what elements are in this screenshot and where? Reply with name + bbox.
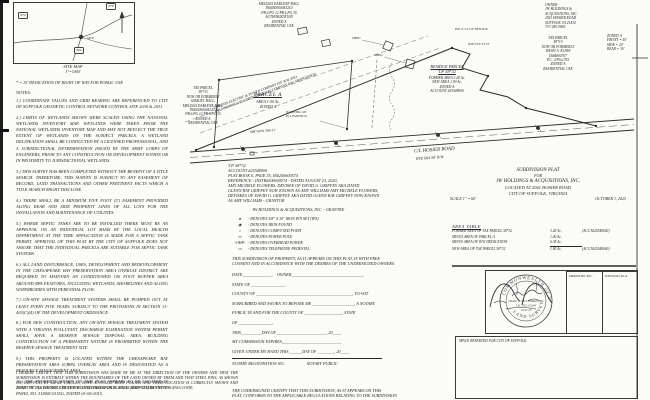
notes-list: 1.) COORDINATE VALUES AND GRID BEARING A… <box>16 98 168 400</box>
notes-title: NOTES: <box>16 90 31 95</box>
route-shield-604: 604 <box>74 47 84 54</box>
area-note: (ACCT#25548000) <box>582 247 636 252</box>
site-map-roads <box>14 3 132 61</box>
subdivision-plat-sheet: 674 676 604 SITE SITE MAP 1"=1000' * = 1… <box>0 0 650 400</box>
form-line-registration: NOTARY REGISTRATION NO. NOTARY PUBLIC <box>232 361 382 366</box>
north-arrow-icon <box>120 11 125 33</box>
area-label: NEW AREA OF TAX PARCEL 58*32 <box>452 247 550 252</box>
area-value: 1.90 Ac. <box>550 247 582 252</box>
route-shield-674: 674 <box>18 12 28 19</box>
zoning-block: ZONED A FRONT = 50' SIDE = 20' REAR = 30… <box>607 34 627 52</box>
legend-text: - DENOTES TELEPHONE PEDESTAL <box>248 246 310 252</box>
legend: ●- DENOTES 5/8" X 30" IRON PIN SET (IPS)… <box>232 216 319 252</box>
job-number-label: JOB #GM-182-A <box>603 272 638 333</box>
surveyor-certification: I HEREBY CERTIFY THAT THIS SUBDIVISION W… <box>16 371 238 391</box>
parcel-a-body: AREA 1.00 Ac. ZONED A <box>238 100 298 110</box>
residue-parcel-body: FORMER AREA 3.28 Ac. NEW AREA 1.90 Ac. Z… <box>412 76 482 94</box>
owner-block: OWNER - JW HOLDINGS & ACQUISITIONS, INC.… <box>545 3 578 29</box>
note-item: 1.) COORDINATE VALUES AND GRID BEARING A… <box>16 98 168 110</box>
corridor-dashed-line-2 <box>200 48 440 133</box>
residue-parcel-title: RESIDUE PARCEL T.P. 58*32 <box>416 64 478 74</box>
new-rw-label: P.B. 6 C/L OF NEW R/W <box>455 27 488 31</box>
note-item: 7.) ON-SITE SEWAGE TREATMENT SYSTEMS SHA… <box>16 297 168 315</box>
telephone-pedestal-legend-icon: ▭ <box>232 246 248 252</box>
city-box-label: SPACE RESERVED FOR CITY OF SUFFOLK <box>459 339 526 343</box>
adjoiner-west-label: TAX PARCEL 58*33 NOW OR FORMERLY SAMUEL … <box>178 86 228 125</box>
road-south-edge <box>190 130 634 163</box>
scan-edge-tick <box>0 129 9 132</box>
shed-label-1: SHED <box>352 36 360 40</box>
title-block: SUBDIVISION PLAT FOR JW HOLDINGS & ACQUI… <box>440 168 636 202</box>
site-dot <box>79 35 83 39</box>
scan-corner-mark <box>0 0 9 3</box>
plat-date: OCTOBER 1, 2025 <box>595 197 626 202</box>
scan-edge-strip <box>0 0 3 400</box>
buffer-dashed-line <box>372 60 377 128</box>
city-approval-box: SPACE RESERVED FOR CITY OF SUFFOLK <box>455 336 638 399</box>
form-line-state: STATE OF ________________, <box>232 282 382 287</box>
note-item: 6.) ALL LAND DISTURBANCE, USES, DEVELOPM… <box>16 262 168 293</box>
area-table: AREA TABLE FORMER AREA OF TAX PARCEL 58*… <box>452 224 636 252</box>
consent-paragraph: THIS SUBDIVISION OF PROPERTY, AS IT APPE… <box>232 256 395 266</box>
site-map-scale: 1"=1000' <box>13 70 133 75</box>
shed-symbol-2 <box>405 59 415 69</box>
note-item: 2.) LIMITS OF WETLANDS SHOWN WERE SCALED… <box>16 115 168 164</box>
road-north-edge <box>190 119 634 152</box>
structure-2 <box>321 39 330 47</box>
coord-leader-line <box>320 121 345 128</box>
signature-cell: DRAWN BY: RJC JOB #GM-182-A <box>567 271 637 333</box>
area-table-row: NEW AREA OF TAX PARCEL 58*321.90 Ac.(ACC… <box>452 247 636 252</box>
form-line-date-owner: DATE______________, OWNER_______________… <box>232 272 382 277</box>
wetland-line <box>390 63 395 131</box>
parcel-a-north-line <box>219 61 352 80</box>
note-item: 8.) FOR NEW CONSTRUCTION, ANY ON-SITE SE… <box>16 320 168 351</box>
grantee-line: JW HOLDINGS & ACQUISITIONS, INC. - GRANT… <box>252 207 344 212</box>
form-line-commission: MY COMMISSION EXPIRES,__________________… <box>232 339 382 344</box>
route-shield-676: 676 <box>106 3 116 10</box>
form-line-this-day: THIS__________DAY OF____________________… <box>232 330 382 335</box>
form-line-sworn: SUBSCRIBED AND SWORN TO BEFORE ME ______… <box>232 301 382 306</box>
note-item: 5.) WHERE SEPTIC TANKS ARE TO BE INSTALL… <box>16 221 168 258</box>
telephone-pedestal-icon <box>250 152 254 155</box>
note-item: 4.) THERE SHALL BE A MINIMUM FIVE FOOT (… <box>16 198 168 216</box>
parcel-a-title: PARCEL A <box>238 92 298 99</box>
form-line-of: OF ________________, <box>232 320 382 325</box>
note-item: 3.) THIS SURVEY HAS BEEN COMPLETED WITHO… <box>16 169 168 194</box>
signature-scribble <box>486 271 555 317</box>
grid-coordinates-label: N) 3453821.28 E) 12049059.52 <box>286 110 307 118</box>
closing-certification: THE UNDERSIGNED CERTIFY THAT THIS SUBDIV… <box>232 388 397 398</box>
site-map-box: 674 676 604 SITE <box>13 2 135 64</box>
legend-item: ▭- DENOTES TELEPHONE PEDESTAL <box>232 246 319 252</box>
site-label: SITE <box>87 36 94 40</box>
notary-form: DATE______________, OWNER_______________… <box>232 272 382 370</box>
parcel-a-east-line <box>347 61 352 129</box>
plat-scale: SCALE 1" = 60' <box>450 197 476 202</box>
shed-symbol-1 <box>383 41 393 51</box>
deed-reference-block: T.P. 58*32 ACCOUNT #25548000 PLAT BOOK 6… <box>228 164 379 204</box>
shed-label-2: SHED <box>374 53 382 57</box>
bearing-label-ne: N36°23'E 53.33' <box>468 42 490 46</box>
form-line-public: PUBLIC IN AND FOR THE COUNTY OF ________… <box>232 310 382 315</box>
dedication-note: * = 10' DEDICATION OF RIGHT OF WAY FOR P… <box>16 80 216 85</box>
adjoiner-ne-label: TAX PARCEL 58*15 NOW OR FORMERLY DAWN A.… <box>534 36 582 71</box>
adjoiner-north-label: MELISSA DARLENE HALL IN#050000043210 PB … <box>240 2 318 28</box>
form-line-hand: GIVEN UNDER MY HAND THIS ______DAY OF __… <box>232 349 382 354</box>
seal-signature-block: COMMONWEALTH OF VIRGINIA LAND SURVEYOR C… <box>485 270 638 334</box>
drawn-by-label: DRAWN BY: RJC <box>567 272 603 333</box>
form-line-county: COUNTY OF ______________________________… <box>232 291 382 296</box>
signature-rule <box>232 358 382 359</box>
